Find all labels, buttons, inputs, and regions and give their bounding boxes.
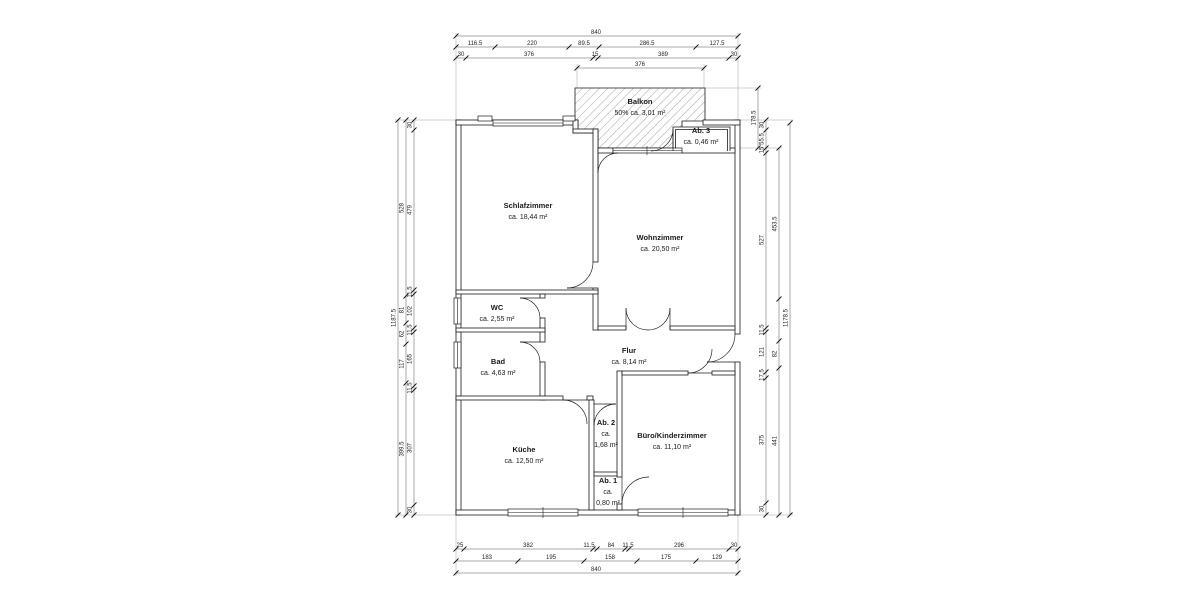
dimension-label: 30 (731, 543, 738, 549)
room-label-balkon: Balkon (627, 97, 652, 106)
floor-plan-page: 840116.522089.5286.5127.5303761538930376… (0, 0, 1200, 600)
room-area-k-che: ca. 12,50 m² (505, 458, 545, 465)
floor-plan: 840116.522089.5286.5127.5303761538930376… (0, 0, 1200, 600)
dimension-label: 55.5 (760, 133, 766, 145)
room-label-ab-2: Ab. 2 (597, 418, 615, 427)
room-area-balkon: 50% ca. 3,01 m² (615, 110, 667, 117)
room-label-bad: Bad (491, 357, 506, 366)
dimension-label: 441 (773, 435, 779, 446)
dimension-label: 81 (400, 306, 406, 313)
dimension-label: 389 (658, 52, 669, 58)
dimension-label: 127.5 (709, 41, 725, 47)
room-label-b-ro-kinderzimmer: Büro/Kinderzimmer (637, 431, 707, 440)
dimension-label: 175 (661, 555, 672, 561)
room-label-ab-1: Ab. 1 (599, 476, 617, 485)
room-label-wc: WC (491, 303, 504, 312)
dimension-label: 15 (592, 52, 599, 58)
dimension-label: 82 (773, 350, 779, 357)
dimension-label: 62 (400, 330, 406, 337)
dimension-label: 158 (605, 555, 616, 561)
dimension-label: 30 (458, 52, 465, 58)
room-area-ab-1: 0,80 m² (596, 500, 620, 507)
dimension-label: 165 (408, 353, 414, 364)
room-label-wohnzimmer: Wohnzimmer (637, 233, 684, 242)
dimension-label: 25 (457, 543, 464, 549)
dimension-label: 117 (400, 359, 406, 369)
dimension-label: 376 (635, 62, 646, 68)
room-area-ab-2: 1,68 m² (594, 442, 618, 449)
dimension-label: 121 (760, 346, 766, 357)
room-area-schlafzimmer: ca. 18,44 m² (509, 214, 549, 221)
room-area-flur: ca. 8,14 m² (611, 359, 647, 366)
room-area-ab-2: ca. (601, 431, 610, 438)
room-label-schlafzimmer: Schlafzimmer (504, 201, 553, 210)
dimension-label: 840 (591, 30, 602, 36)
dimension-label: 840 (591, 567, 602, 573)
room-area-ab-1: ca. (603, 489, 612, 496)
dimension-label: 528 (400, 202, 406, 213)
dimension-label: 286.5 (639, 41, 655, 47)
dimension-label: 376 (524, 52, 535, 58)
dimension-label: 89.5 (578, 41, 590, 47)
dimension-label: 527 (760, 234, 766, 245)
dimension-label: 129 (712, 555, 723, 561)
dimension-label: 11.5 (583, 543, 595, 549)
dimension-label: 11.5 (408, 286, 414, 298)
room-label-ab-3: Ab. 3 (692, 126, 710, 135)
room-label-k-che: Küche (513, 445, 536, 454)
dimension-label: 183 (482, 555, 493, 561)
dimension-label: 1187.5 (392, 308, 398, 327)
room-area-wc: ca. 2,55 m² (479, 316, 515, 323)
dimension-label: 30 (760, 121, 766, 128)
dimension-label: 11.5 (622, 543, 634, 549)
dimension-label: 382 (523, 543, 534, 549)
dimension-label: 375 (760, 434, 766, 445)
dimension-label: 15 (760, 146, 766, 153)
dimension-label: 453.5 (773, 216, 779, 232)
dimension-label: 399.5 (400, 441, 406, 457)
dimension-label: 30 (731, 52, 738, 58)
dimension-label: 116.5 (468, 41, 483, 47)
dimension-label: 17.5 (760, 369, 766, 381)
room-area-ab-3: ca. 0,46 m² (683, 139, 719, 146)
dimension-label: 102 (408, 305, 414, 316)
dimension-label: 30 (408, 506, 414, 513)
dimension-label: 84 (608, 543, 615, 549)
dimension-label: 195 (546, 555, 557, 561)
dimension-label: 479 (408, 204, 414, 215)
dimension-label: 30 (760, 505, 766, 512)
room-area-wohnzimmer: ca. 20,50 m² (641, 246, 681, 253)
dimension-label: 11.5 (408, 324, 414, 336)
dimension-label: 30 (408, 121, 414, 128)
room-area-b-ro-kinderzimmer: ca. 11,10 m² (653, 444, 692, 451)
dimension-label: 220 (527, 41, 538, 47)
dimension-label: 178.5 (752, 110, 758, 126)
dimension-label: 11.5 (408, 382, 414, 394)
dimension-label: 307 (408, 442, 414, 453)
dimension-label: 11.5 (760, 324, 766, 336)
dimension-label: 296 (674, 543, 685, 549)
room-area-bad: ca. 4,63 m² (480, 370, 516, 377)
room-label-flur: Flur (622, 346, 636, 355)
dimension-label: 1178.5 (784, 308, 790, 327)
